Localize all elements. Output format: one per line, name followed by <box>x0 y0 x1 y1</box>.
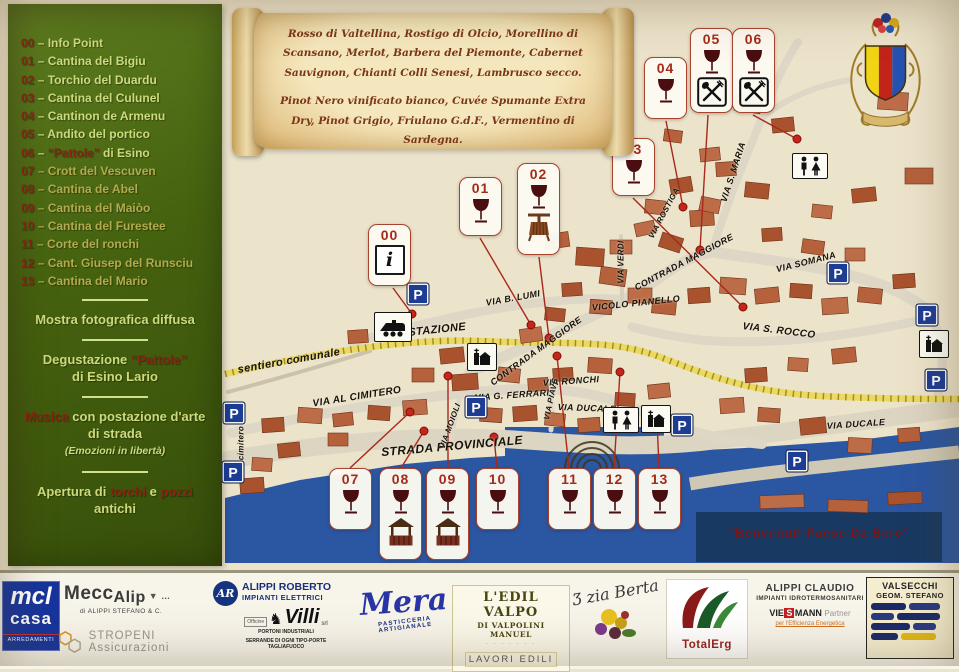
legend-item-02: 02 – Torchio del Duardu <box>21 71 218 89</box>
legend-item-11: 11 – Corte del ronchi <box>21 235 218 253</box>
legend-item-label: di Esino <box>100 146 150 160</box>
legend-item-number: 05 <box>21 127 34 141</box>
marker-number: 01 <box>472 180 490 196</box>
legend-item-label: Cantina del Maiòo <box>48 201 151 215</box>
horse-icon: ♞ <box>269 613 282 627</box>
legend-note-text: di strada <box>88 426 142 441</box>
legend-item-number: 08 <box>21 182 34 196</box>
well-icon <box>433 517 463 547</box>
parking-sign: P <box>786 450 809 473</box>
legend-item-number: 01 <box>21 54 34 68</box>
legend-panel: 00 – Info Point01 – Cantina del Bigiu02 … <box>8 4 222 566</box>
legend-note-line: di Esino Lario <box>14 368 216 385</box>
wine-glass-icon <box>390 489 412 515</box>
wine-glass-icon <box>743 49 765 75</box>
street-label: CONTRADA MAGGIORE <box>633 232 735 293</box>
legend-item-label: Cantina de Abel <box>48 182 138 196</box>
street-label: VIA B. LUMI <box>485 288 541 307</box>
poi-wc <box>792 153 828 179</box>
street-label: VIA ROSTIGA <box>647 186 681 240</box>
wine-glass-icon <box>655 78 677 104</box>
parking-sign: P <box>223 402 246 425</box>
legend-note-text: Mostra fotografica diffusa <box>35 312 195 327</box>
edil-valpo-logo: L'EDIL VALPO DI VALPOLINI MANUEL · · · ·… <box>452 585 570 672</box>
alippi-roberto-text: ALIPPI ROBERTO IMPIANTI ELETTRICI <box>242 581 331 602</box>
wine-press-icon <box>526 212 552 242</box>
well-icon <box>386 517 416 547</box>
street-label: VIA S. MARIA <box>719 141 748 204</box>
legend-item-label: Cant. Giusep del Runsciu <box>48 256 193 270</box>
legend-note-line: di strada <box>14 425 216 442</box>
coat-of-arms <box>838 8 933 138</box>
villi-srl: srl <box>321 621 327 627</box>
marker-number: 05 <box>703 31 721 47</box>
mcl-text: mcl <box>3 584 59 610</box>
legend-note-text: torchi <box>110 484 146 499</box>
marker-number: 04 <box>657 60 675 76</box>
meccalip-n1: Mecc <box>64 583 114 604</box>
map-marker-12: 12 <box>593 468 636 530</box>
legend-note-text: con postazione d'arte <box>69 409 206 424</box>
legend-note-line: Mostra fotografica diffusa <box>14 311 216 328</box>
restaurant-cutlery-icon <box>697 77 727 107</box>
marker-number: 12 <box>606 471 624 487</box>
arredamenti-text: ARREDAMENTI <box>3 634 59 643</box>
marker-number: 07 <box>342 471 360 487</box>
totalerg-logo: TotalErg <box>666 579 748 659</box>
restaurant-cutlery-icon <box>739 77 769 107</box>
poi-church <box>919 330 949 358</box>
zia-berta-logo: Ʒ zia Berta <box>566 583 666 648</box>
wine-glass-icon <box>470 198 492 224</box>
legend-divider <box>82 471 148 473</box>
legend-item-label: Crott del Vescuven <box>48 164 156 178</box>
street-label: sentiero comunale <box>237 346 342 376</box>
villi-name-row: Officine ♞ Villi srl <box>228 607 344 627</box>
bar <box>871 623 910 630</box>
legend-divider <box>82 299 148 301</box>
legend-item-label: Cantina del Culunel <box>48 91 160 105</box>
poi-church <box>467 343 497 371</box>
train-icon <box>378 315 408 339</box>
officine-label: Officine <box>244 617 267 627</box>
legend-item-04: 04 – Cantinon de Armenu <box>21 107 218 125</box>
marker-number: 08 <box>392 471 410 487</box>
marker-number: 02 <box>530 166 548 182</box>
map-marker-00: 00i <box>368 224 411 286</box>
valsecchi-bars <box>871 603 949 610</box>
legend-note-text: Apertura di <box>37 484 110 499</box>
stropeni-logo: STROPENI Assicurazioni <box>58 629 228 655</box>
legend-note-2: Musica con postazione d'artedi strada(Em… <box>14 408 216 460</box>
sponsor-strip: mcl casa ARREDAMENTI MeccAlip▼ … di ALIP… <box>0 570 959 669</box>
legend-item-label: Corte del ronchi <box>47 237 139 251</box>
map-marker-05: 05 <box>690 28 733 113</box>
viessmann-partner: Partner <box>824 609 850 618</box>
mera-logo: Mera PASTICCERIA ARTIGIANALE <box>351 583 458 634</box>
valsecchi-bars <box>871 623 949 630</box>
legend-item-number: 13 <box>21 274 34 288</box>
legend-list: 00 – Info Point01 – Cantina del Bigiu02 … <box>21 34 218 290</box>
map-marker-01: 01 <box>459 177 502 236</box>
valsecchi-bars <box>871 613 949 620</box>
poi-church <box>641 405 671 433</box>
legend-item-label: Cantina del Mario <box>48 274 148 288</box>
street-label: STRADA PROVINCIALE <box>381 433 524 459</box>
parking-sign: P <box>222 461 245 484</box>
legend-item-06: 06 – “Pattole” di Esino <box>21 144 218 162</box>
totalerg-icon <box>671 580 743 634</box>
map-marker-04: 04 <box>644 57 687 119</box>
street-label: VICOLO PIANELLO <box>591 293 680 312</box>
legend-item-08: 08 – Cantina de Abel <box>21 180 218 198</box>
meccalip-n2: Alip <box>114 589 146 606</box>
bar <box>913 623 936 630</box>
church-icon <box>923 333 945 355</box>
map-marker-11: 11 <box>548 468 591 530</box>
legend-item-label: Cantinon de Armenu <box>48 109 166 123</box>
wine-glass-icon <box>701 49 723 75</box>
legend-item-05: 05 – Andito del portico <box>21 125 218 143</box>
street-label: cimitero <box>237 426 246 460</box>
bar <box>871 613 894 620</box>
legend-note-line: antichi <box>14 500 216 517</box>
legend-item-number: 03 <box>21 91 34 105</box>
marker-number: 11 <box>561 471 578 487</box>
map-marker-09: 09 <box>426 468 469 560</box>
wine-glass-icon <box>604 489 626 515</box>
wine-glass-icon <box>559 489 581 515</box>
wc-icon <box>607 410 635 430</box>
wine-list-text: Rosso di Valtellina, Rostigo di Olcio, M… <box>270 25 596 151</box>
viessmann-slogan: per l'Efficienza Energetica <box>752 621 868 627</box>
info-icon: i <box>375 245 405 275</box>
bar <box>897 613 940 620</box>
scroll-parchment: Rosso di Valtellina, Rostigo di Olcio, M… <box>254 13 612 149</box>
legend-item-label: Cantina del Bigiu <box>48 54 146 68</box>
parking-sign: P <box>827 262 850 285</box>
map-marker-07: 07 <box>329 468 372 530</box>
poi-wc <box>603 407 639 433</box>
villi-name: Villi <box>285 607 320 627</box>
street-label: VIA AL CIMITERO <box>312 385 402 410</box>
wine-glass-icon <box>437 489 459 515</box>
legend-item-number: 12 <box>21 256 34 270</box>
alippi-roberto-sub: IMPIANTI ELETTRICI <box>242 593 331 602</box>
ar-monogram-icon: AR <box>213 581 238 606</box>
poi-train <box>374 312 412 342</box>
edil-valpo-dots: · · · · · · · <box>455 641 567 647</box>
hexagons-icon <box>58 629 86 655</box>
meccalip-logo: MeccAlip▼ … di ALIPPI STEFANO & C. <box>64 583 204 615</box>
legend-item-number: 00 <box>21 36 34 50</box>
legend-note-line: Degustazione “Pattole” <box>14 351 216 368</box>
legend-item-label: “Pattole” <box>48 146 100 160</box>
viessmann-v3: MANN <box>795 608 822 618</box>
legend-item-number: 10 <box>21 219 34 233</box>
parking-sign: P <box>407 283 430 306</box>
valsecchi-logo: VALSECCHI GEOM. STEFANO <box>866 577 954 659</box>
parking-sign: P <box>465 396 488 419</box>
legend-note-3: Apertura di torchi e pozziantichi <box>14 483 216 517</box>
meccalip-name: MeccAlip▼ … <box>64 583 204 605</box>
legend-item-number: 06 <box>21 146 34 160</box>
wine-glass-icon <box>528 184 550 210</box>
red-wines-paragraph: Rosso di Valtellina, Rostigo di Olcio, M… <box>270 25 596 83</box>
bar <box>871 603 906 610</box>
mcl-casa-logo: mcl casa ARREDAMENTI <box>2 581 60 651</box>
legend-item-number: 07 <box>21 164 34 178</box>
edil-valpo-name: L'EDIL VALPO <box>455 590 567 620</box>
legend-item-number: 11 <box>21 237 34 251</box>
legend-item-01: 01 – Cantina del Bigiu <box>21 52 218 70</box>
legend-note-1: Degustazione “Pattole”di Esino Lario <box>14 351 216 385</box>
legend-note-text: Degustazione <box>43 352 131 367</box>
legend-note-text: Musica <box>25 409 69 424</box>
legend-notes: Mostra fotografica diffusaDegustazione “… <box>14 288 216 517</box>
legend-item-number: 02 <box>21 73 34 87</box>
white-wines-paragraph: Pinot Nero vinificato bianco, Cuvée Spum… <box>270 92 596 150</box>
legend-note-subtext: (Emozioni in libertà) <box>14 443 216 460</box>
lavori-edili-label: LAVORI EDILI <box>465 652 558 667</box>
street-label: VIA VERDI <box>617 240 626 283</box>
map-marker-06: 06 <box>732 28 775 113</box>
legend-item-label: Cantina del Furestee <box>48 219 166 233</box>
marker-number: 00 <box>381 227 399 243</box>
legend-note-0: Mostra fotografica diffusa <box>14 311 216 328</box>
legend-note-line: Musica con postazione d'arte <box>14 408 216 425</box>
legend-note-text: “Pattole” <box>131 352 187 367</box>
legend-item-label: Info Point <box>48 36 103 50</box>
marker-number: 10 <box>489 471 507 487</box>
flowers-icon <box>581 603 651 643</box>
meccalip-deco-icon: ▼ … <box>149 591 171 601</box>
legend-item-03: 03 – Cantina del Culunel <box>21 89 218 107</box>
church-icon <box>471 346 493 368</box>
marker-number: 13 <box>651 471 669 487</box>
bar <box>901 633 936 640</box>
alippi-claudio-sub: IMPIANTI IDROTERMOSANITARI <box>752 595 868 602</box>
bar <box>909 603 940 610</box>
church-icon <box>645 408 667 430</box>
legend-item-12: 12 – Cant. Giusep del Runsciu <box>21 254 218 272</box>
wine-glass-icon <box>487 489 509 515</box>
legend-item-07: 07 – Crott del Vescuven <box>21 162 218 180</box>
legend-note-text: pozzi <box>161 484 194 499</box>
map-marker-10: 10 <box>476 468 519 530</box>
meccalip-sub: di ALIPPI STEFANO & C. <box>80 608 204 615</box>
totalerg-name: TotalErg <box>667 639 747 651</box>
legend-divider <box>82 339 148 341</box>
alippi-claudio-logo: ALIPPI CLAUDIO IMPIANTI IDROTERMOSANITAR… <box>752 583 868 627</box>
alippi-roberto-name: ALIPPI ROBERTO <box>242 581 331 593</box>
wine-list-scroll: Rosso di Valtellina, Rostigo di Olcio, M… <box>232 6 634 158</box>
legend-item-number: 04 <box>21 109 34 123</box>
villi-sub1: PORTONI INDUSTRIALI <box>228 629 344 636</box>
legend-item-label: Torchio del Duardu <box>48 73 157 87</box>
legend-item-10: 10 – Cantina del Furestee <box>21 217 218 235</box>
legend-item-00: 00 – Info Point <box>21 34 218 52</box>
legend-item-label: Andito del portico <box>47 127 150 141</box>
legend-item-number: 09 <box>21 201 34 215</box>
wine-glass-icon <box>649 489 671 515</box>
coat-of-arms-icon <box>838 8 933 133</box>
edil-valpo-sub: DI VALPOLINI MANUEL <box>455 621 567 639</box>
parking-sign: P <box>671 414 694 437</box>
legend-item-09: 09 – Cantina del Maiòo <box>21 199 218 217</box>
parking-sign: P <box>916 304 939 327</box>
wine-glass-icon <box>623 159 645 185</box>
alippi-roberto-logo: AR ALIPPI ROBERTO IMPIANTI ELETTRICI <box>213 581 338 606</box>
stropeni-name: STROPENI Assicurazioni <box>89 630 228 654</box>
street-label: VIA DUCALE <box>826 417 885 431</box>
map-marker-02: 02 <box>517 163 560 255</box>
map-marker-13: 13 <box>638 468 681 530</box>
legend-note-text: antichi <box>94 501 136 516</box>
casa-text: casa <box>3 610 59 628</box>
wine-glass-icon <box>340 489 362 515</box>
marker-number: 06 <box>745 31 763 47</box>
villi-sub2: SERRANDE DI OGNI TIPO-PORTE TAGLIAFUOCO <box>228 638 344 651</box>
bar <box>871 633 898 640</box>
legend-note-text: e <box>146 484 160 499</box>
map-marker-08: 08 <box>379 468 422 560</box>
viessmann-s-icon: S <box>784 608 794 618</box>
valsecchi-bars <box>871 633 949 640</box>
welcome-text: “Benvenuti Paese Da Bere” <box>700 526 938 540</box>
viessmann-v1: VIE <box>769 608 784 618</box>
officine-villi-logo: Officine ♞ Villi srl PORTONI INDUSTRIALI… <box>228 607 344 651</box>
street-label: VIA S. ROCCO <box>742 321 816 341</box>
marker-number: 09 <box>439 471 457 487</box>
alippi-claudio-name: ALIPPI CLAUDIO <box>752 583 868 594</box>
legend-divider <box>82 396 148 398</box>
legend-note-line: Apertura di torchi e pozzi <box>14 483 216 500</box>
valsecchi-sub: GEOM. STEFANO <box>871 591 949 600</box>
wc-icon <box>796 156 824 176</box>
viessmann-partner-logo: VIESMANN Partner <box>752 608 868 618</box>
valsecchi-name: VALSECCHI <box>871 581 949 591</box>
parking-sign: P <box>925 369 948 392</box>
legend-note-text: di Esino Lario <box>72 369 158 384</box>
